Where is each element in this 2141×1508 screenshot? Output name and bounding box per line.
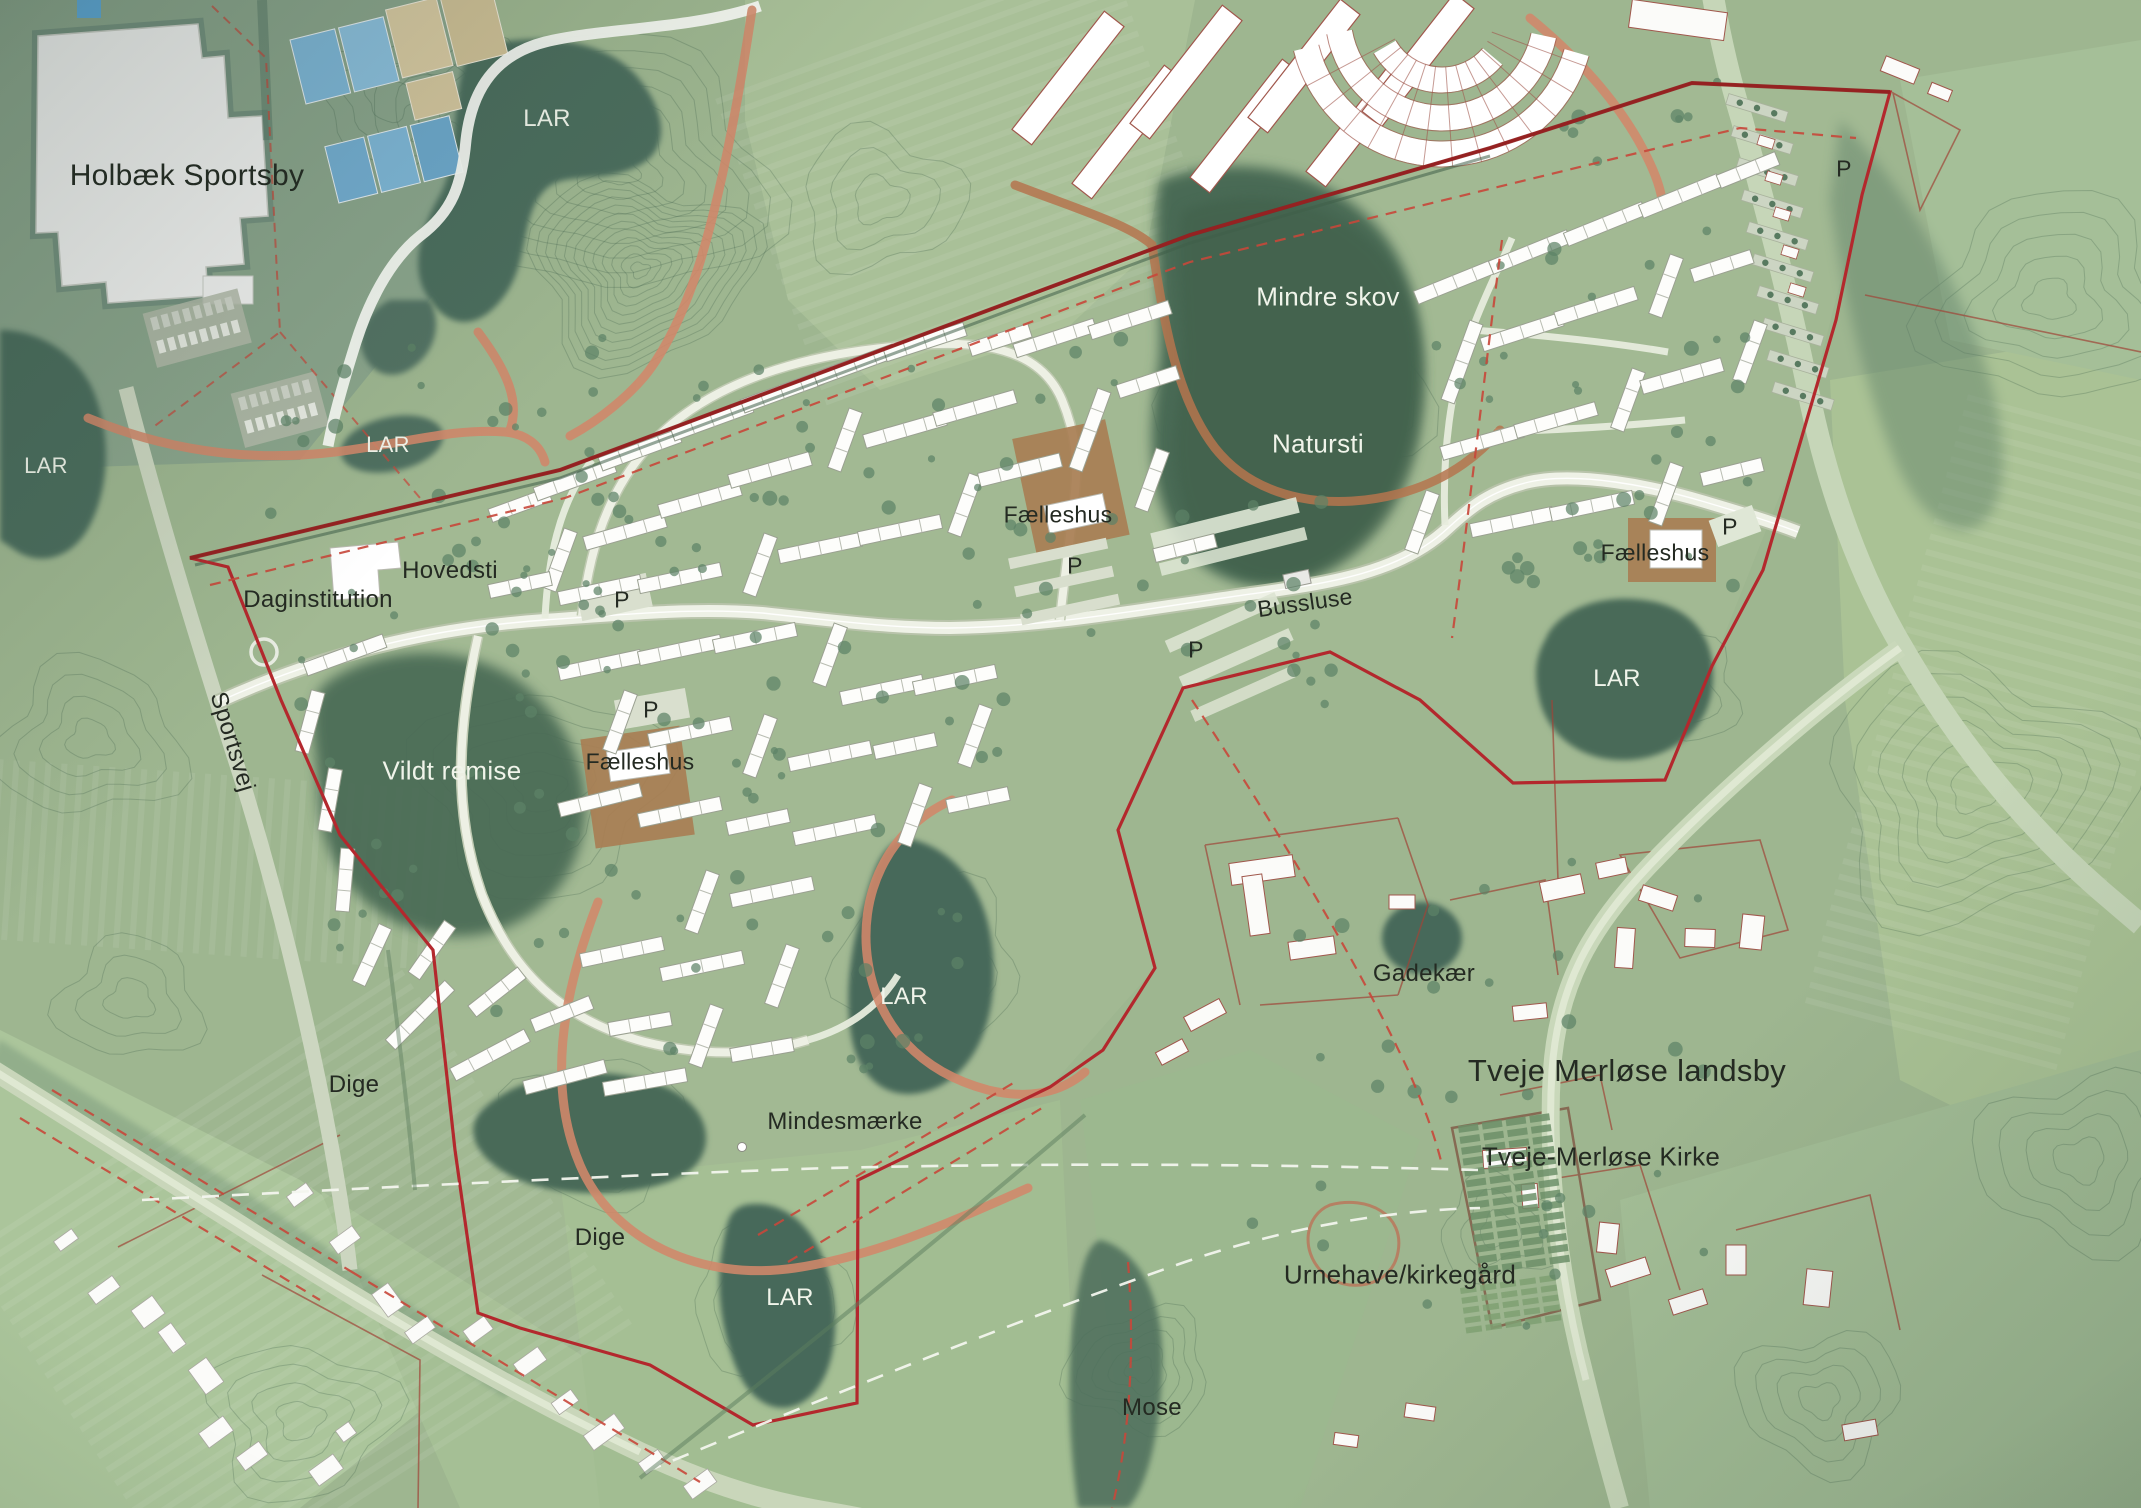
faelleshus-east-site (1628, 518, 1716, 582)
masterplan-map: Holbæk SportsbyLARLARLARMindre skovNatur… (0, 0, 2141, 1508)
faelleshus-east-building (1650, 530, 1702, 568)
pool-blue (77, 0, 101, 18)
pond-lar-east (1536, 599, 1713, 760)
map-artwork (0, 0, 2141, 1508)
pond-gadekaer (1382, 902, 1462, 974)
mindesmaerke-marker (738, 1143, 747, 1152)
